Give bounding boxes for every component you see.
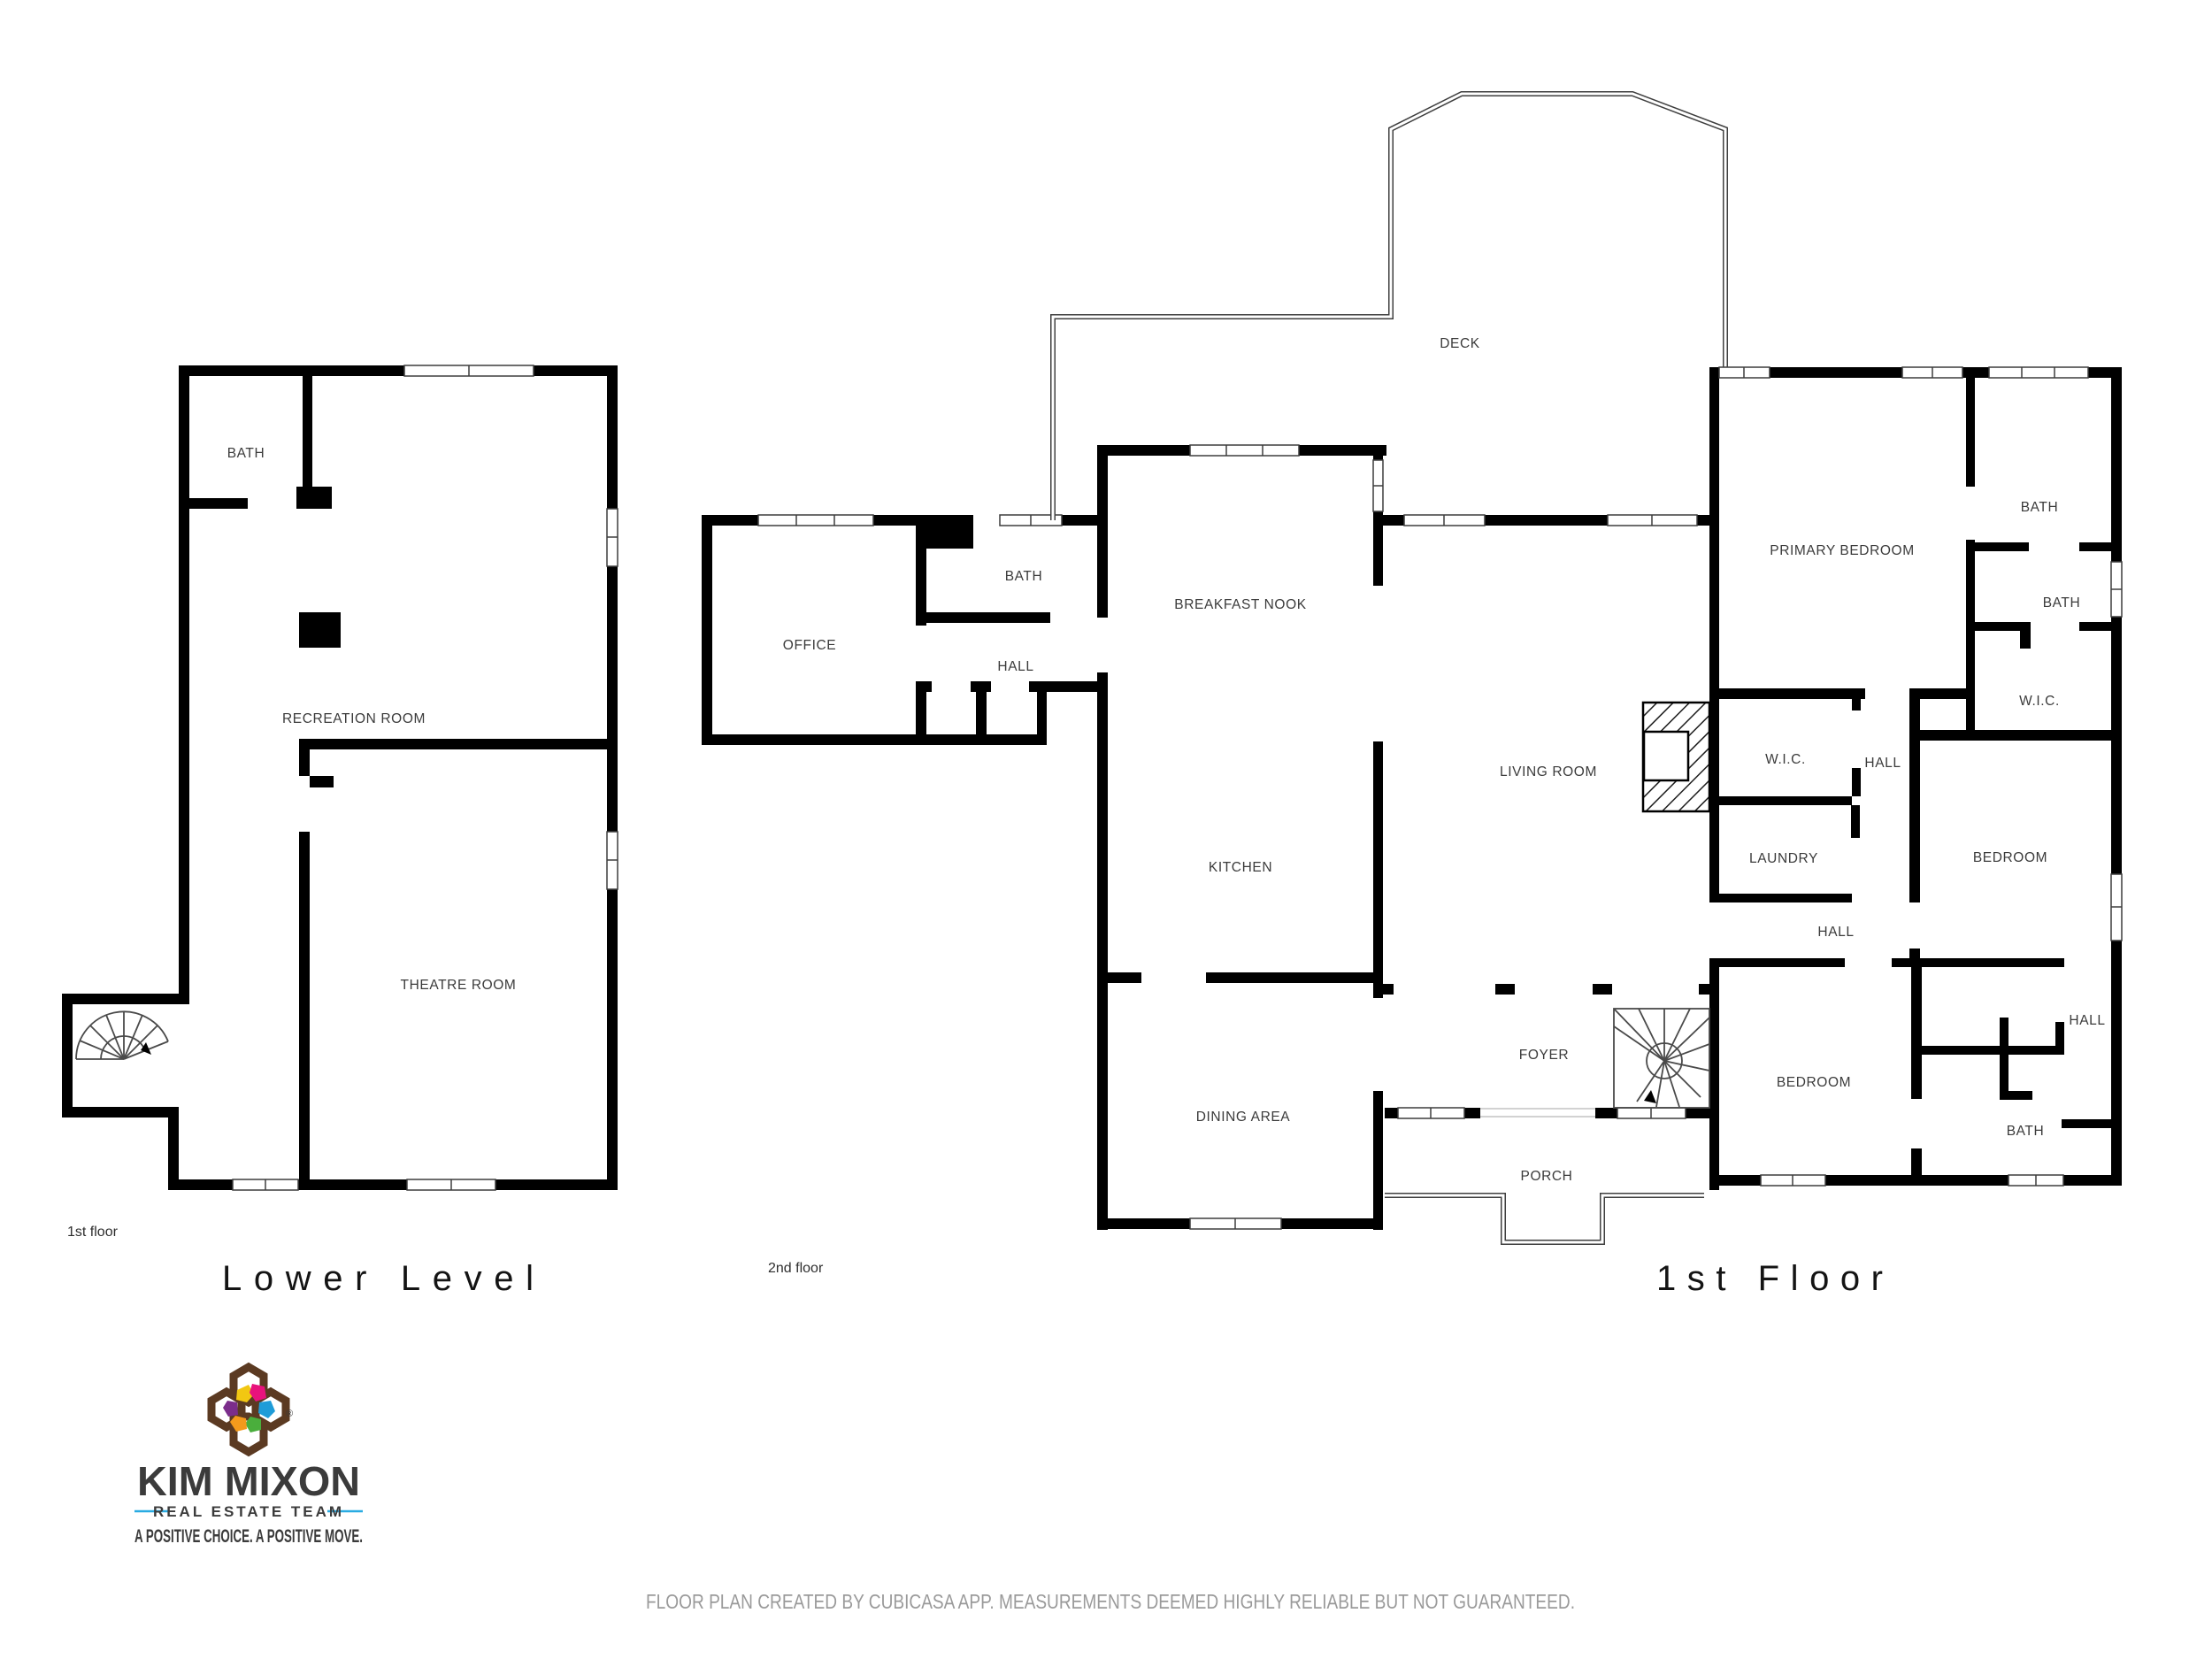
second-floor-plan: OFFICE BATH HALL 2nd floor	[702, 515, 1100, 1276]
room-label-porch: PORCH	[1521, 1169, 1573, 1184]
room-label-living: LIVING ROOM	[1500, 764, 1597, 780]
deck-outline	[1053, 94, 1725, 520]
spiral-staircase	[1614, 1009, 1709, 1108]
room-label-bath-ne: BATH	[2021, 500, 2059, 515]
stair-direction-arrow-icon	[1644, 1090, 1656, 1103]
logo-brand-name: KIM MIXON	[137, 1458, 360, 1504]
porch-outline	[1385, 1195, 1704, 1242]
room-label-deck: DECK	[1440, 336, 1480, 351]
lower-level-walls	[62, 365, 618, 1190]
room-label-of-bath: BATH	[1005, 569, 1043, 584]
first-floor-plan: DECK BREAKFAST NOOK KITCHEN DINING AREA …	[1053, 94, 2122, 1298]
fireplace	[1643, 703, 1709, 811]
room-label-dining: DINING AREA	[1196, 1110, 1291, 1125]
floor-tag-lower: 1st floor	[67, 1225, 119, 1240]
room-label-bath-e: BATH	[2043, 595, 2081, 611]
room-label-recreation: RECREATION ROOM	[282, 711, 426, 726]
plan-title-lower-level: Lower Level	[222, 1259, 534, 1298]
petal-blue	[258, 1401, 275, 1418]
lower-level-spiral-stair	[76, 1011, 168, 1059]
room-label-bedroom-s: BEDROOM	[1777, 1075, 1851, 1090]
room-label-of-hall: HALL	[997, 659, 1033, 674]
room-label-wic-e: W.I.C.	[2019, 694, 2060, 709]
first-floor-walls	[1097, 367, 2122, 1230]
room-label-hall-c: HALL	[1864, 756, 1901, 771]
room-label-theatre: THEATRE ROOM	[401, 978, 517, 993]
room-label-laundry: LAUNDRY	[1749, 851, 1818, 866]
lower-level-plan: BATH RECREATION ROOM THEATRE ROOM 1st fl…	[62, 365, 618, 1298]
room-label-bedroom-e: BEDROOM	[1973, 850, 2047, 865]
second-floor-walls	[702, 515, 1100, 745]
floorplan-canvas: BATH RECREATION ROOM THEATRE ROOM 1st fl…	[0, 0, 2212, 1659]
room-label-office: OFFICE	[783, 638, 836, 653]
room-label-hall-mid: HALL	[1817, 925, 1854, 940]
room-label-breakfast-nook: BREAKFAST NOOK	[1174, 597, 1306, 612]
logo-tagline: A POSITIVE CHOICE. A POSITIVE MOVE.	[134, 1526, 363, 1547]
logo-team-line: REAL ESTATE TEAM	[153, 1503, 344, 1520]
floor-tag-second: 2nd floor	[768, 1261, 824, 1276]
room-label-foyer: FOYER	[1519, 1048, 1569, 1063]
porch-door-threshold	[1480, 1109, 1595, 1117]
room-label-wic-c: W.I.C.	[1765, 752, 1806, 767]
room-label-ll-bath: BATH	[227, 446, 265, 461]
room-label-bath-s: BATH	[2007, 1124, 2045, 1139]
plan-title-first-floor: 1st Floor	[1656, 1259, 1883, 1298]
room-label-hall-se: HALL	[2069, 1013, 2105, 1028]
registered-mark: ®	[286, 1409, 293, 1419]
room-label-kitchen: KITCHEN	[1209, 860, 1272, 875]
logo: ® KIM MIXON REAL ESTATE TEAM A POSITIVE …	[134, 1367, 363, 1547]
logo-icon: ®	[211, 1367, 293, 1452]
floorplan-page: BATH RECREATION ROOM THEATRE ROOM 1st fl…	[0, 0, 2212, 1659]
lower-level-windows	[233, 365, 618, 1190]
room-label-primary-bedroom: PRIMARY BEDROOM	[1770, 543, 1914, 558]
petal-purple	[223, 1401, 238, 1417]
footer-disclaimer: FLOOR PLAN CREATED BY CUBICASA APP. MEAS…	[646, 1590, 1575, 1613]
